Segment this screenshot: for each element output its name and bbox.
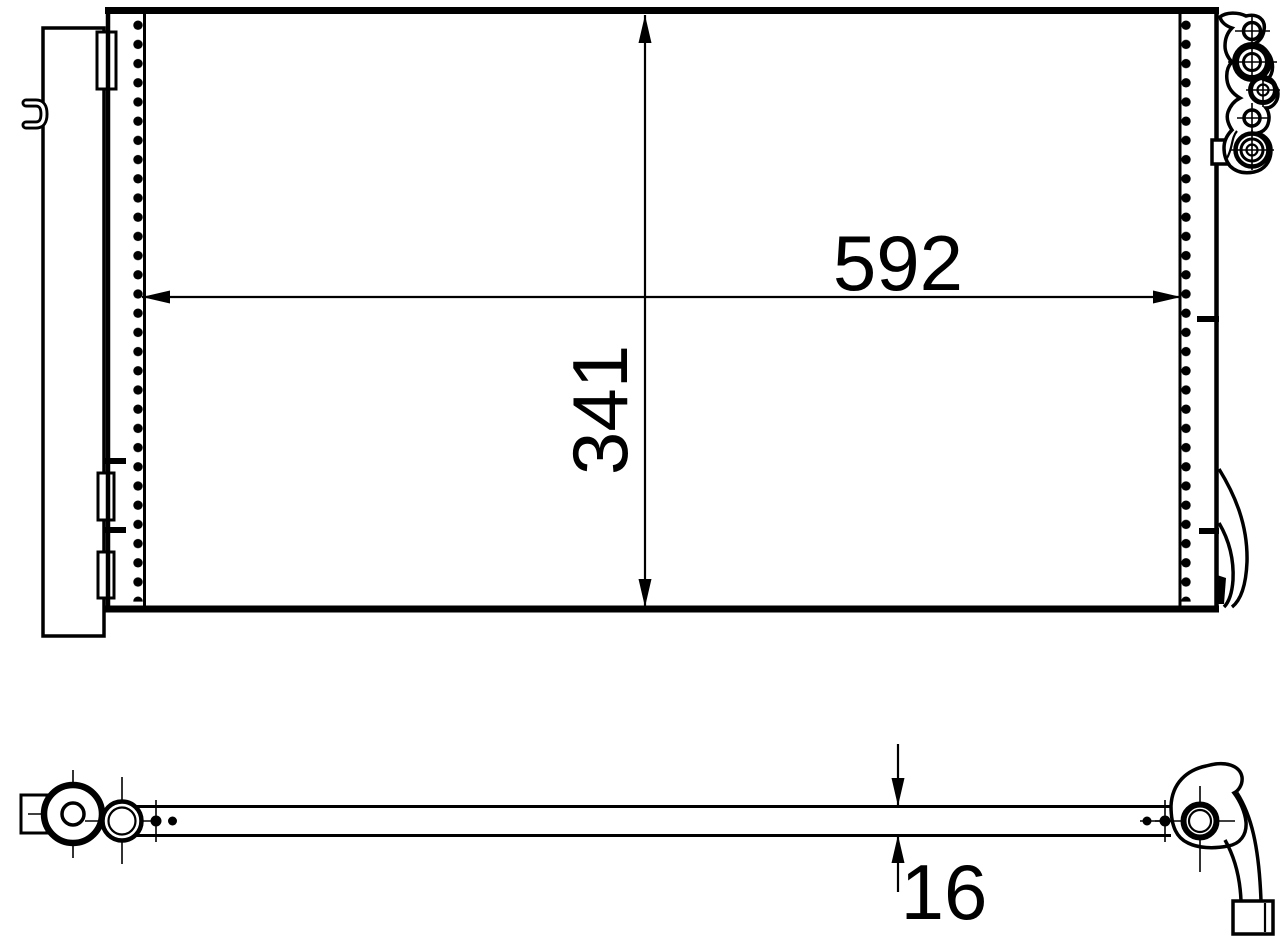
receiver-drier (26, 28, 116, 636)
width-dimension-value: 592 (833, 219, 963, 307)
drier-bottle-circle (44, 785, 102, 843)
thickness-dimension: 16 (892, 744, 988, 936)
width-dimension: 592 (142, 219, 1181, 307)
height-arrow-bottom (639, 579, 652, 607)
condenser-core (131, 13, 1192, 606)
port-bracket (1212, 13, 1280, 173)
width-arrow-left (142, 291, 170, 304)
core-left-fins (131, 16, 144, 602)
bracket-foot (1233, 901, 1273, 934)
core-profile-bar (120, 807, 1171, 836)
technical-drawing-canvas: 592 341 (0, 0, 1280, 944)
receiver-drier-body (43, 28, 104, 636)
height-dimension: 341 (556, 15, 652, 607)
drier-clip (26, 103, 44, 125)
bottom-view: 16 (21, 744, 1273, 936)
left-rivet-1 (151, 816, 162, 827)
thickness-dimension-value: 16 (901, 848, 988, 936)
core-right-fins (1179, 16, 1192, 602)
bottom-right-pipe (1217, 469, 1247, 607)
thickness-arrow-top (892, 778, 905, 806)
tank-partition-marks (103, 319, 1219, 531)
right-end-view (1140, 764, 1273, 934)
width-arrow-right (1153, 291, 1181, 304)
bracket-arm-inner (1225, 840, 1241, 901)
drier-end-view (21, 770, 177, 864)
front-view: 592 341 (26, 10, 1280, 636)
height-dimension-value: 341 (556, 345, 644, 475)
height-arrow-top (639, 15, 652, 43)
right-rivet-1 (1143, 817, 1152, 826)
left-rivet-2 (168, 817, 177, 826)
condenser-drawing-svg: 592 341 (0, 0, 1280, 944)
